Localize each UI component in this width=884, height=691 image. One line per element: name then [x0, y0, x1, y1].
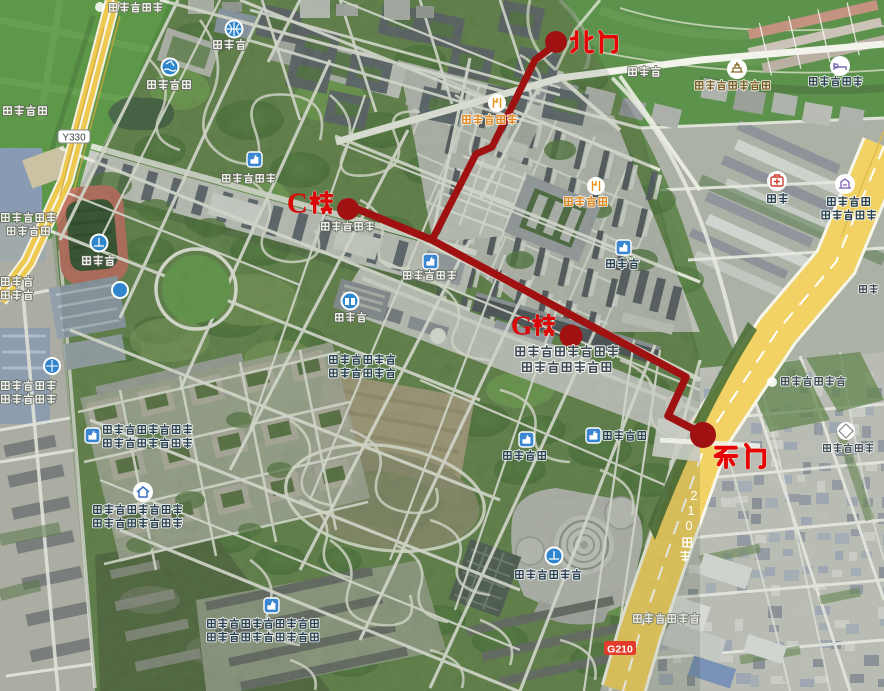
- svg-text:G: G: [511, 310, 532, 341]
- svg-text:0: 0: [685, 518, 692, 533]
- svg-text:1: 1: [687, 503, 694, 518]
- svg-text:G210: G210: [607, 644, 633, 656]
- svg-text:C: C: [287, 188, 308, 220]
- svg-text:Y330: Y330: [62, 133, 86, 144]
- svg-text:2: 2: [690, 488, 697, 503]
